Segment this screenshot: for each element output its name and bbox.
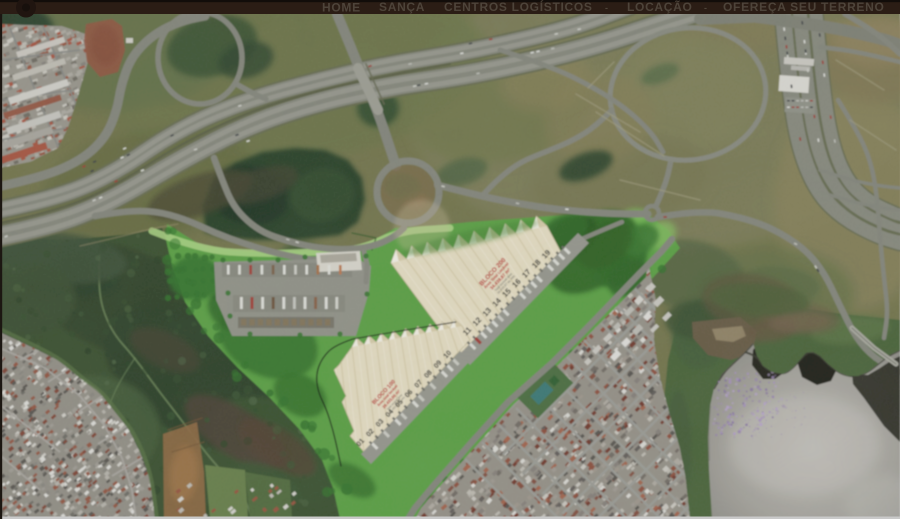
svg-text:SANÇA: SANÇA — [379, 0, 425, 14]
svg-text:LOCAÇÃO: LOCAÇÃO — [627, 0, 693, 14]
svg-text:CENTROS LOGÍSTICOS: CENTROS LOGÍSTICOS — [444, 0, 593, 14]
svg-text:-: - — [704, 3, 708, 13]
svg-text:-: - — [605, 3, 609, 13]
svg-text:HOME: HOME — [322, 1, 361, 15]
svg-text:OFEREÇA SEU TERRENO: OFEREÇA SEU TERRENO — [723, 0, 885, 14]
